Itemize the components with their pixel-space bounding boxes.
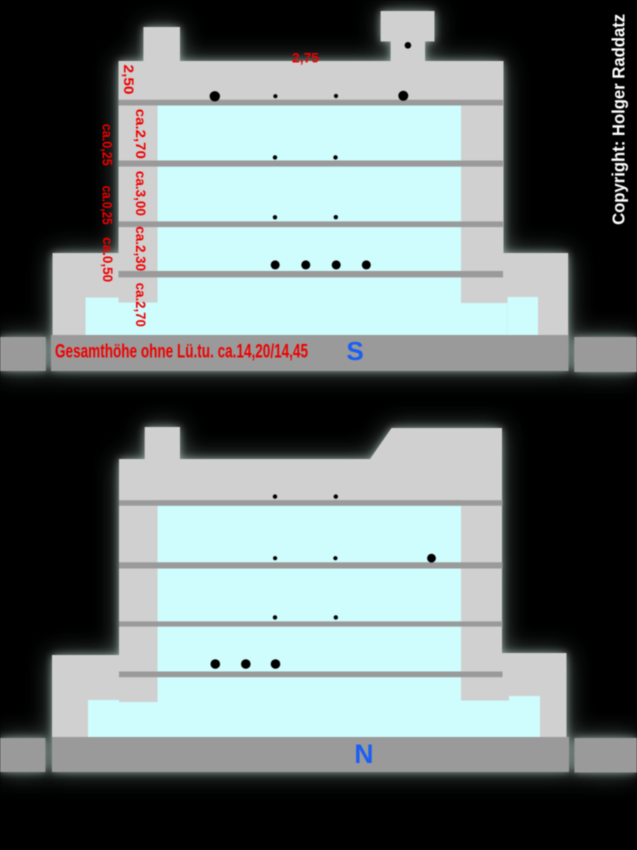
- svg-text:ca.0,25: ca.0,25: [99, 186, 115, 225]
- svg-text:ca.2,70: ca.2,70: [133, 283, 149, 327]
- svg-text:Copyright: Holger Raddatz: Copyright: Holger Raddatz: [608, 14, 628, 225]
- svg-text:Gesamthöhe ohne Lü.tu. ca.14,2: Gesamthöhe ohne Lü.tu. ca.14,20/14,45: [55, 340, 308, 362]
- svg-text:S: S: [346, 336, 363, 366]
- svg-text:ca.0,25: ca.0,25: [99, 124, 115, 166]
- svg-text:2,50: 2,50: [121, 65, 137, 95]
- svg-text:ca.0,50: ca.0,50: [100, 237, 116, 282]
- svg-text:ca.3,00: ca.3,00: [133, 171, 149, 216]
- svg-text:ca.2,30: ca.2,30: [133, 226, 149, 271]
- svg-text:ca.2,70: ca.2,70: [133, 109, 149, 159]
- svg-text:N: N: [354, 739, 373, 769]
- svg-text:2,75: 2,75: [292, 50, 319, 65]
